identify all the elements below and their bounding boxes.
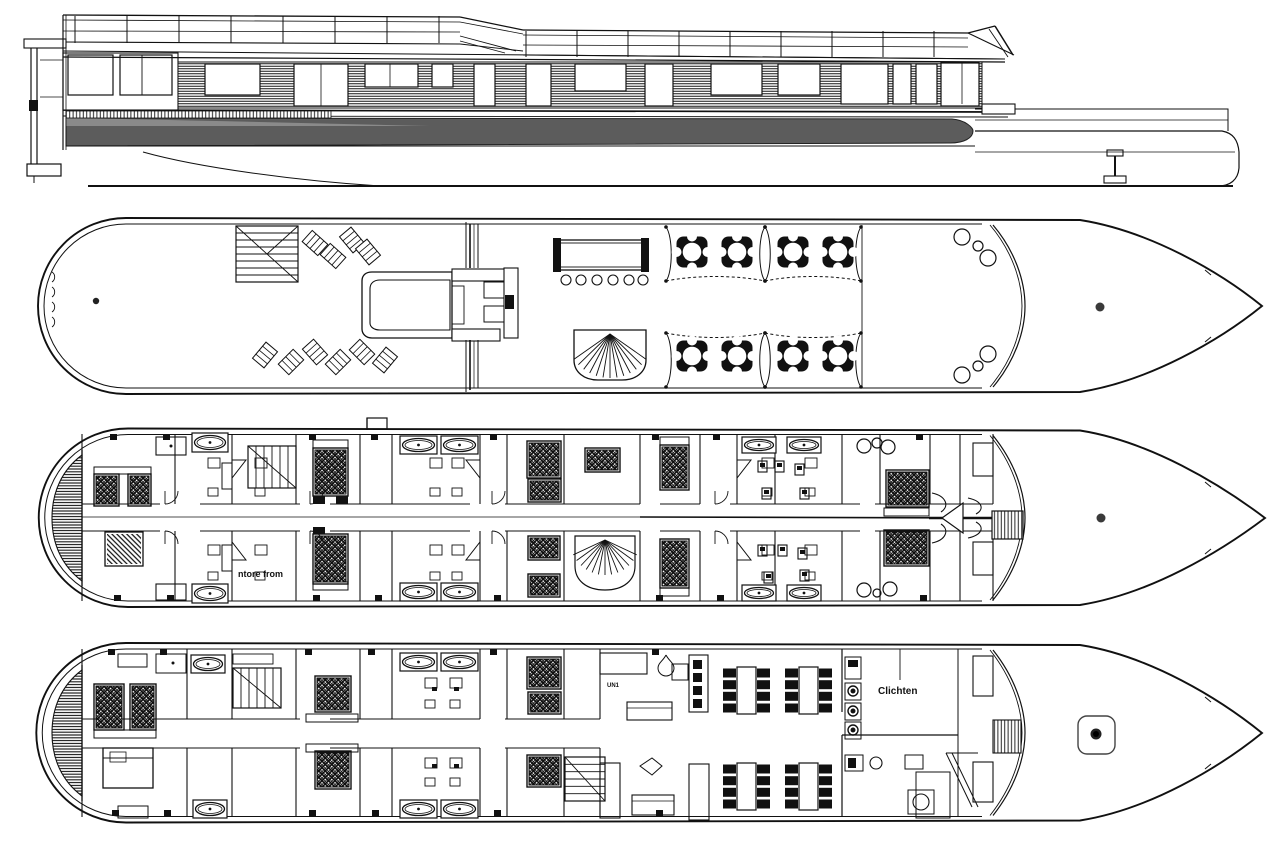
svg-text:ntore from: ntore from <box>238 569 283 579</box>
svg-text:UN1: UN1 <box>607 683 620 689</box>
svg-text:Clichten: Clichten <box>878 686 917 697</box>
